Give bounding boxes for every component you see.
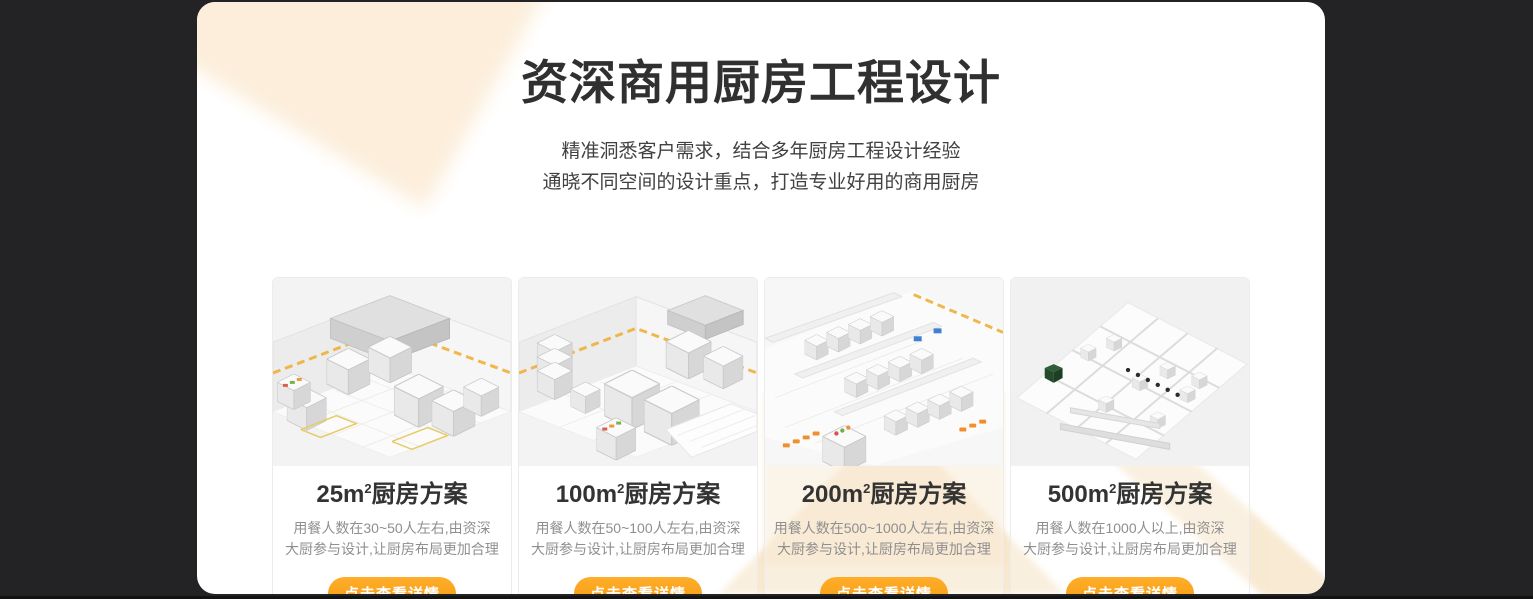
- page-background: 资深商用厨房工程设计 精准洞悉客户需求，结合多年厨房工程设计经验 通晓不同空间的…: [0, 0, 1533, 599]
- card-title: 500m2厨房方案: [1011, 481, 1249, 510]
- content-panel: 资深商用厨房工程设计 精准洞悉客户需求，结合多年厨房工程设计经验 通晓不同空间的…: [197, 2, 1325, 594]
- card-description: 用餐人数在50~100人左右,由资深大厨参与设计,让厨房布局更加合理: [525, 518, 751, 560]
- view-details-button[interactable]: 点击查看详情: [574, 577, 702, 594]
- card-title: 25m2厨房方案: [273, 481, 511, 510]
- kitchen-isometric-render-image: [519, 278, 757, 466]
- kitchen-plan-card-200sqm[interactable]: 200m2厨房方案 用餐人数在500~1000人左右,由资深大厨参与设计,让厨房…: [764, 277, 1004, 594]
- kitchen-plan-cards-row: 25m2厨房方案 用餐人数在30~50人左右,由资深大厨参与设计,让厨房布局更加…: [272, 277, 1250, 594]
- page-title: 资深商用厨房工程设计: [197, 56, 1325, 110]
- kitchen-plan-card-25sqm[interactable]: 25m2厨房方案 用餐人数在30~50人左右,由资深大厨参与设计,让厨房布局更加…: [272, 277, 512, 594]
- 200sqm-kitchen-render: [765, 278, 1003, 466]
- card-title: 200m2厨房方案: [765, 481, 1003, 510]
- kitchen-isometric-render-image: [273, 278, 511, 466]
- panel-content: 资深商用厨房工程设计 精准洞悉客户需求，结合多年厨房工程设计经验 通晓不同空间的…: [197, 56, 1325, 594]
- 500sqm-kitchen-render: [1011, 278, 1249, 466]
- card-description: 用餐人数在500~1000人左右,由资深大厨参与设计,让厨房布局更加合理: [771, 518, 997, 560]
- card-description: 用餐人数在1000人以上,由资深大厨参与设计,让厨房布局更加合理: [1017, 518, 1243, 560]
- card-description: 用餐人数在30~50人左右,由资深大厨参与设计,让厨房布局更加合理: [279, 518, 505, 560]
- kitchen-plan-card-100sqm[interactable]: 100m2厨房方案 用餐人数在50~100人左右,由资深大厨参与设计,让厨房布局…: [518, 277, 758, 594]
- view-details-button[interactable]: 点击查看详情: [820, 577, 948, 594]
- squared-superscript: 2: [364, 481, 371, 496]
- 25sqm-kitchen-render: [273, 278, 511, 466]
- page-subtitle-line1: 精准洞悉客户需求，结合多年厨房工程设计经验: [197, 136, 1325, 167]
- kitchen-isometric-render-image: [1011, 278, 1249, 466]
- view-details-button[interactable]: 点击查看详情: [1066, 577, 1194, 594]
- kitchen-isometric-render-image: [765, 278, 1003, 466]
- view-details-button[interactable]: 点击查看详情: [328, 577, 456, 594]
- card-title: 100m2厨房方案: [519, 481, 757, 510]
- page-subtitle-line2: 通晓不同空间的设计重点，打造专业好用的商用厨房: [197, 167, 1325, 198]
- kitchen-plan-card-500sqm[interactable]: 500m2厨房方案 用餐人数在1000人以上,由资深大厨参与设计,让厨房布局更加…: [1010, 277, 1250, 594]
- 100sqm-kitchen-render: [519, 278, 757, 466]
